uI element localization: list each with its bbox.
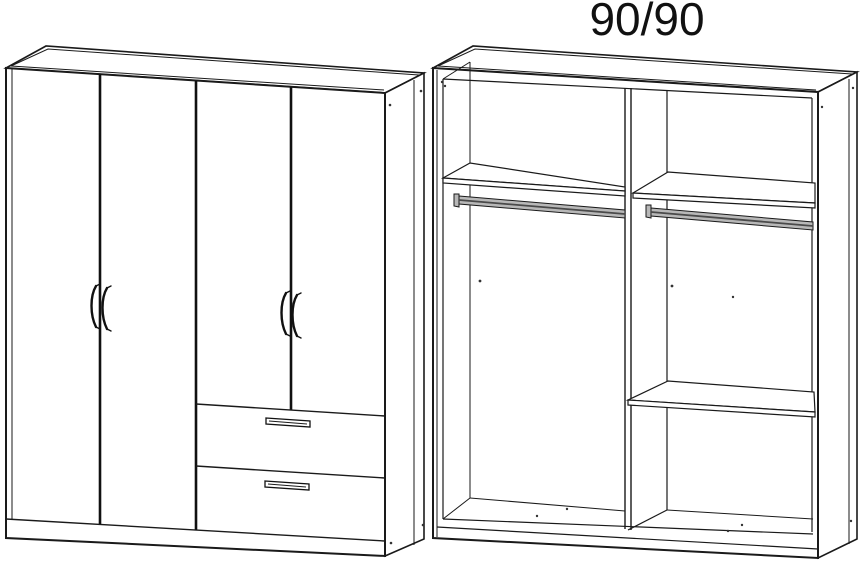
rail-bracket bbox=[454, 194, 459, 207]
wardrobe-diagram bbox=[0, 0, 864, 565]
wardrobe-diagram-page: 90/90 bbox=[0, 0, 864, 565]
side-panel bbox=[818, 72, 857, 558]
side-panel bbox=[385, 73, 424, 556]
open-wardrobe-view bbox=[433, 46, 857, 558]
rail-bracket bbox=[646, 205, 651, 218]
size-label: 90/90 bbox=[552, 0, 742, 46]
closed-wardrobe-view bbox=[6, 46, 424, 556]
